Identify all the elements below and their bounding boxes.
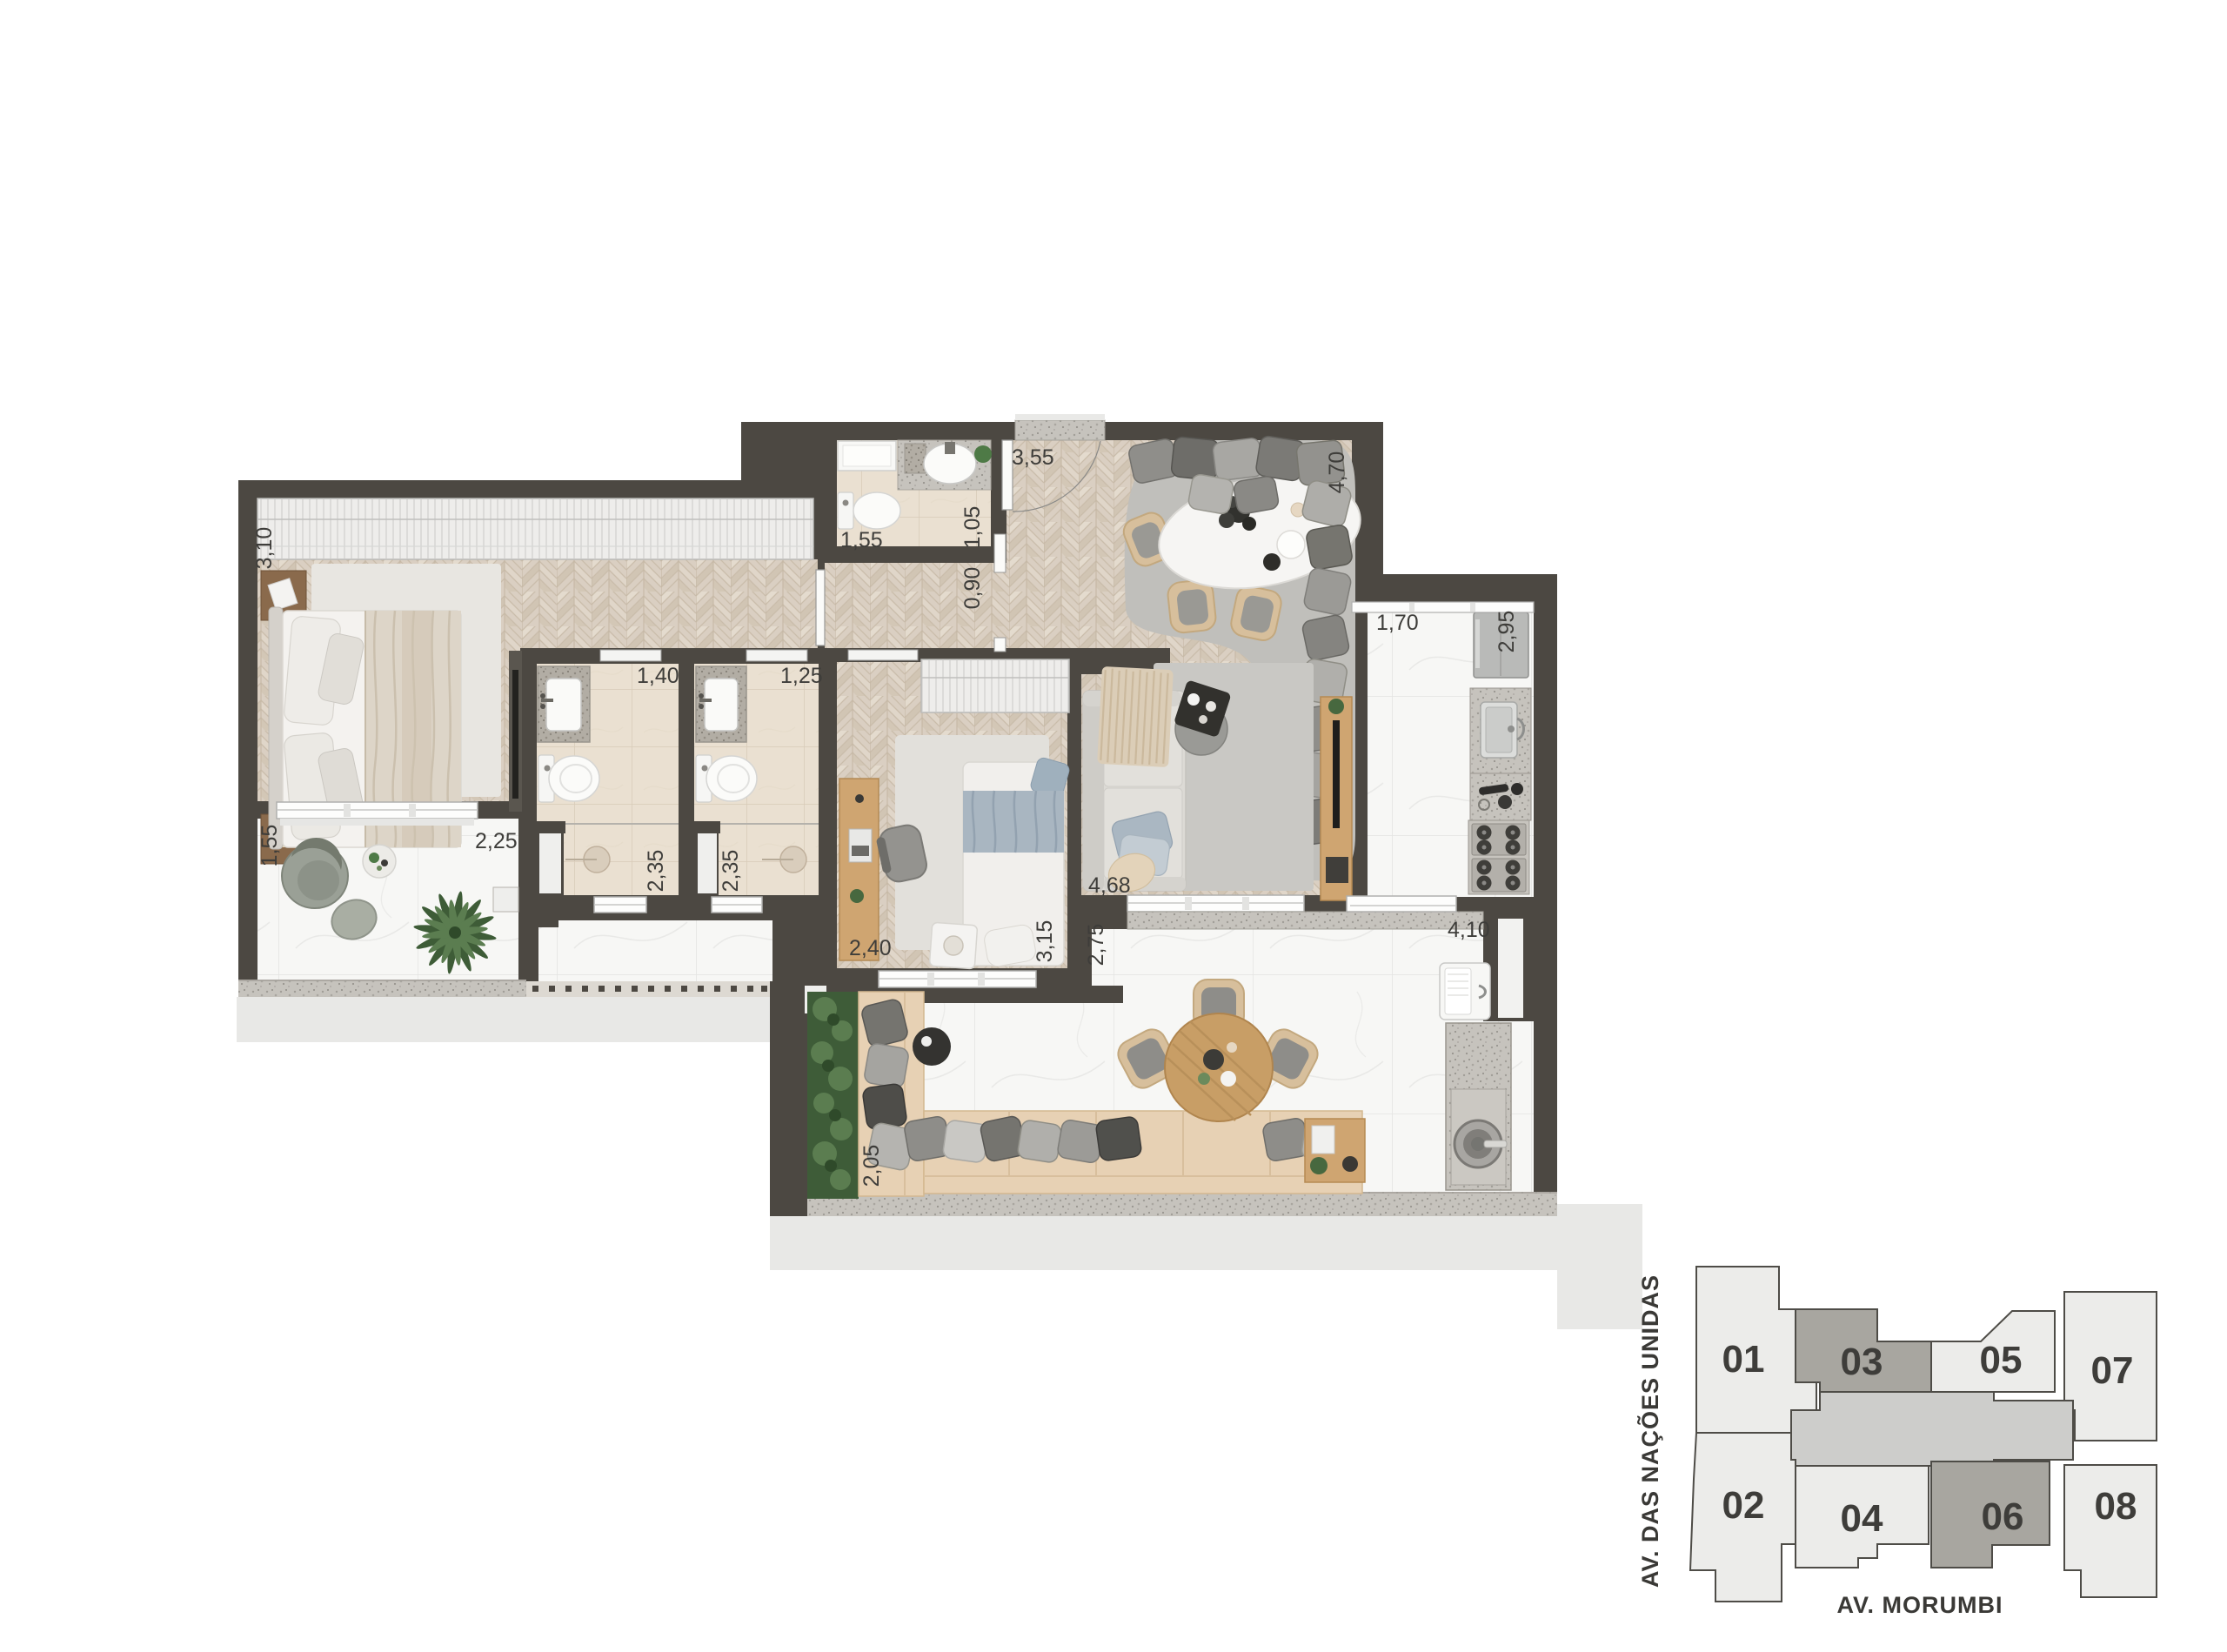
svg-text:2,25: 2,25 — [475, 829, 518, 853]
svg-text:06: 06 — [1982, 1495, 2024, 1538]
svg-text:1,55: 1,55 — [257, 825, 282, 867]
svg-text:2,05: 2,05 — [859, 1145, 884, 1187]
svg-text:AV. MORUMBI: AV. MORUMBI — [1836, 1592, 2003, 1618]
svg-text:2,95: 2,95 — [1495, 611, 1519, 653]
svg-text:1,70: 1,70 — [1376, 611, 1419, 635]
svg-text:3,10: 3,10 — [252, 527, 277, 570]
svg-text:08: 08 — [2095, 1485, 2137, 1528]
svg-text:4,10: 4,10 — [1448, 918, 1490, 942]
svg-text:4,70: 4,70 — [1325, 451, 1349, 494]
svg-text:2,75: 2,75 — [1084, 924, 1108, 966]
svg-text:03: 03 — [1841, 1341, 1883, 1383]
svg-text:2,35: 2,35 — [719, 850, 743, 893]
svg-text:1,25: 1,25 — [780, 664, 823, 688]
svg-text:1,05: 1,05 — [960, 506, 985, 549]
svg-text:02: 02 — [1722, 1484, 1765, 1527]
svg-text:01: 01 — [1722, 1338, 1765, 1381]
svg-text:0,90: 0,90 — [960, 567, 985, 610]
svg-text:AV. DAS NAÇÕES UNIDAS: AV. DAS NAÇÕES UNIDAS — [1636, 1274, 1663, 1588]
svg-text:1,55: 1,55 — [840, 528, 883, 552]
svg-text:4,68: 4,68 — [1088, 873, 1131, 898]
svg-text:2,40: 2,40 — [849, 936, 892, 960]
svg-text:05: 05 — [1980, 1339, 2023, 1381]
svg-text:3,15: 3,15 — [1033, 920, 1057, 963]
svg-text:3,55: 3,55 — [1012, 445, 1054, 470]
svg-text:1,40: 1,40 — [637, 664, 679, 688]
svg-text:07: 07 — [2091, 1349, 2134, 1392]
svg-text:04: 04 — [1841, 1497, 1883, 1540]
svg-text:2,35: 2,35 — [644, 850, 668, 893]
